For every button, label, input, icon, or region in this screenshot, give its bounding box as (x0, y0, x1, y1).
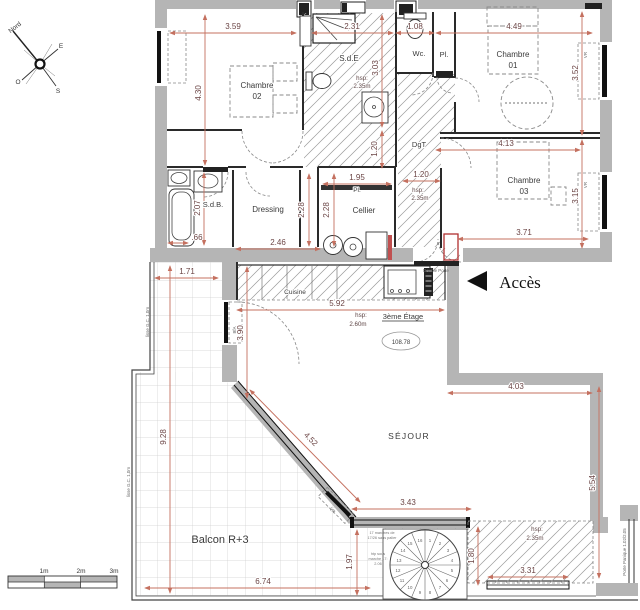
dim: 2.07 (193, 200, 202, 216)
vr-label-2: VR (583, 182, 588, 188)
dim: 1.95 (349, 173, 365, 182)
dim: 4.13 (498, 139, 514, 148)
window-sejour-west (224, 302, 228, 343)
scale-2m: 2m (76, 568, 85, 575)
window-chambre03-east (602, 175, 607, 229)
window-chambre02-west (157, 31, 161, 83)
room-chambre01: Chambre (497, 50, 530, 59)
compass-west: O (15, 79, 20, 86)
svg-text:hsp:: hsp: (356, 75, 368, 82)
room-wc: Wc. (413, 49, 426, 58)
room-pl-cellier: Pl. (353, 187, 361, 194)
room-sde: S.d.E (339, 54, 359, 63)
window-chambre01-east (602, 45, 607, 97)
room-cuisine: Cuisine (284, 289, 306, 296)
hsp-value: 2.35m (411, 195, 428, 202)
compass-rose: Nord E S O (7, 20, 63, 95)
dim: 2.31 (344, 22, 360, 31)
compass-east: E (59, 43, 64, 50)
room-dgt: DgT (412, 140, 427, 149)
dim: 3.03 (371, 60, 380, 76)
radiator (388, 235, 392, 260)
room-chambre03: Chambre (508, 176, 541, 185)
dim: 3.43 (400, 498, 416, 507)
access-label: Accès (499, 273, 541, 292)
stair-note: 17/26 sans palier (368, 536, 398, 540)
stair-note: 17 marches de (369, 531, 394, 535)
stair-step: 15 (408, 541, 413, 546)
stair-note: 2.06 (374, 562, 381, 566)
dim: 3.90 (236, 325, 245, 341)
svg-text:02: 02 (253, 92, 262, 101)
room-dressing: Dressing (252, 205, 284, 214)
compass-south: S (56, 88, 61, 95)
panic-door-label: Porte Panique 1.02/2.05 (622, 528, 627, 576)
dim: 2.46 (270, 238, 286, 247)
vr-label-1: VR (583, 52, 588, 58)
dim: 3.15 (571, 188, 580, 204)
stair-step: 14 (401, 548, 406, 553)
access-arrow-icon (467, 271, 487, 291)
stair-note: htp sous (371, 552, 385, 556)
dim: 4.03 (508, 382, 524, 391)
room-sdb: S.d.B. (203, 200, 223, 209)
dim: 4.49 (506, 22, 522, 31)
toilet-wc-tank (404, 13, 426, 19)
cabinet-sde (300, 16, 311, 46)
double-porte-label: Double Porte (423, 268, 449, 273)
floor-plan-page: VR VR BfA VR (0, 0, 640, 610)
room-chambre02: Chambre (241, 81, 274, 90)
dim: 1.71 (179, 267, 195, 276)
panic-door: Porte Panique 1.02/2.05 (622, 519, 634, 583)
dim: 5.54 (588, 475, 597, 491)
svg-text:2.35m: 2.35m (526, 535, 543, 542)
dim: 6.74 (255, 577, 271, 586)
dim: .66 (191, 233, 203, 242)
railing-label-2: lisse G.C. 1,0m (126, 467, 131, 497)
dim: 2.28 (297, 202, 306, 218)
dim: 1.20 (370, 141, 379, 157)
toilet-sde-tank (306, 72, 312, 90)
railing-label-1: lisse G.C. 1,0m (145, 307, 150, 337)
stair-step: 16 (418, 538, 423, 543)
stair-step: 12 (396, 568, 401, 573)
svg-text:2.60m: 2.60m (349, 321, 366, 328)
dim: 3.31 (520, 566, 536, 575)
scale-bar: 1m 2m 3m (8, 568, 119, 588)
dryer (344, 238, 363, 257)
toilet-sde (313, 74, 331, 89)
washer (324, 236, 343, 255)
stair-step: 10 (408, 585, 413, 590)
stair-step: 13 (397, 558, 402, 563)
stair-step: 11 (400, 578, 405, 583)
svg-text:01: 01 (509, 61, 518, 70)
room-balcon: Balcon R+3 (191, 534, 248, 546)
dim: 3.71 (516, 228, 532, 237)
svg-text:03: 03 (520, 187, 529, 196)
room-cellier: Cellier (353, 206, 376, 215)
dim: 3.59 (225, 22, 241, 31)
svg-text:hsp:: hsp: (355, 312, 367, 319)
room-sejour: SÉJOUR (388, 431, 430, 441)
double-door-bar (414, 261, 459, 266)
floor-label: 3ème Étage (383, 312, 423, 321)
dim: 1.20 (413, 170, 429, 179)
loggia-hsp: hsp: (531, 526, 543, 533)
cellier-fixtures (321, 185, 392, 260)
hsp-label: hsp: (412, 187, 424, 194)
floor-plan-svg: VR VR BfA VR (0, 0, 640, 610)
room-pl-top: Pl. (440, 50, 449, 59)
dim: 4.30 (194, 85, 203, 101)
dim: 9.28 (159, 429, 168, 445)
lintel-bar (585, 3, 602, 9)
svg-text:2.35m: 2.35m (353, 83, 370, 90)
scale-3m: 3m (109, 568, 118, 575)
dim: 5.92 (329, 299, 345, 308)
dim: 1.97 (345, 554, 354, 570)
stair-note: marche 17: (369, 557, 388, 561)
counter (366, 232, 387, 259)
dim: 1.08 (407, 22, 423, 31)
scale-1m: 1m (39, 568, 48, 575)
floor-area: 108.78 (392, 340, 411, 346)
dim: 3.52 (571, 65, 580, 81)
dim: 1.80 (467, 548, 476, 564)
bed-chambre02 (230, 66, 273, 117)
dim: 2.28 (322, 202, 331, 218)
